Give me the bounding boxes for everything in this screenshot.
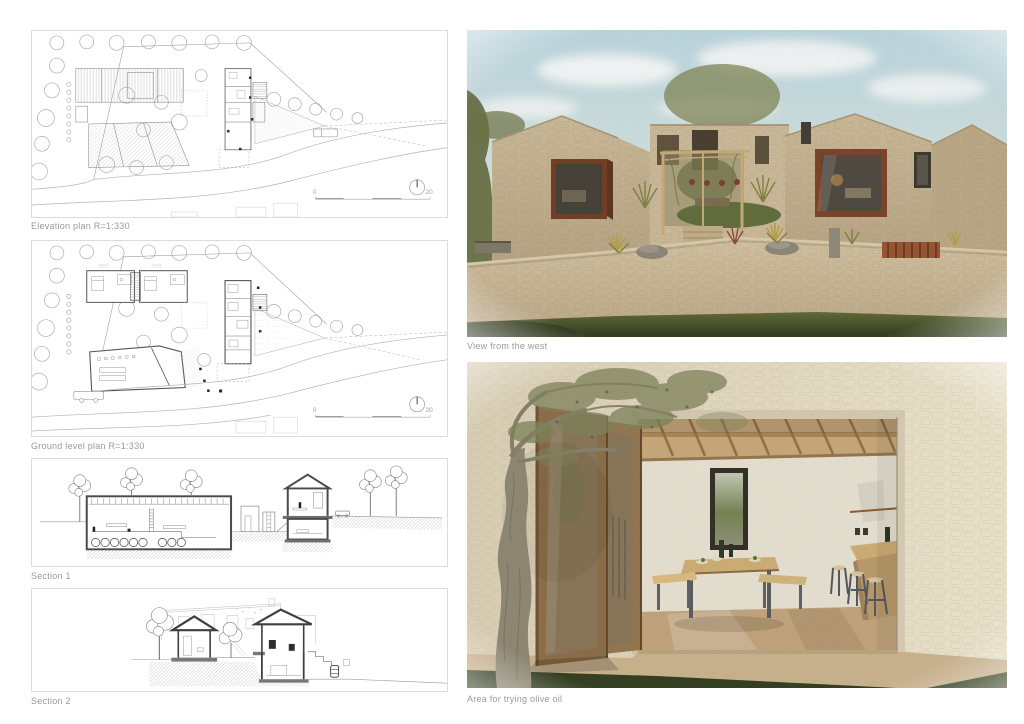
elevation-plan-svg: 0 20 [32, 31, 447, 217]
elevation-plan-caption: Elevation plan R=1:330 [31, 221, 130, 231]
section1-caption: Section 1 [31, 571, 71, 581]
vignette [467, 30, 1007, 337]
main-house-plan [199, 281, 267, 393]
render-west-caption: View from the west [467, 341, 547, 351]
render-view-from-west [467, 30, 1007, 337]
scale-end-label: 20 [425, 189, 433, 196]
section2-caption: Section 2 [31, 696, 71, 706]
terrace-triangle [255, 96, 447, 145]
vignette [467, 362, 1007, 688]
north-arrow-icon [410, 396, 425, 411]
terrace-triangle [255, 308, 447, 359]
scale-start-label: 0 [313, 407, 317, 414]
underground-hall-section [87, 496, 231, 549]
elevation-plan-panel: 0 20 [31, 30, 448, 218]
scale-start-label: 0 [313, 189, 317, 196]
section1-panel [31, 458, 448, 567]
section2-svg [32, 589, 447, 691]
ground-plan-panel: bed bed [31, 240, 448, 437]
north-arrow-icon [410, 179, 425, 194]
scale-end-label: 20 [425, 407, 433, 414]
room-label-bed-left: bed [99, 264, 109, 270]
section1-svg [32, 459, 447, 566]
render-olive-svg [467, 362, 1007, 688]
right-building-section [253, 610, 350, 683]
render-olive-caption: Area for trying olive oil [467, 694, 562, 704]
room-label-bed-right: bed [151, 264, 161, 270]
section2-panel [31, 588, 448, 692]
ground-plan-caption: Ground level plan R=1:330 [31, 441, 145, 451]
truck-symbol [314, 129, 338, 137]
bedroom-wing-plan: bed bed [87, 264, 188, 303]
presentation-board: 0 20 Elevation plan R=1:330 [0, 0, 1024, 724]
render-olive-area [467, 362, 1007, 688]
render-west-svg [467, 30, 1007, 337]
truck-symbol [74, 391, 104, 402]
house-section [283, 475, 350, 543]
ground-plan-svg: bed bed [32, 241, 447, 436]
